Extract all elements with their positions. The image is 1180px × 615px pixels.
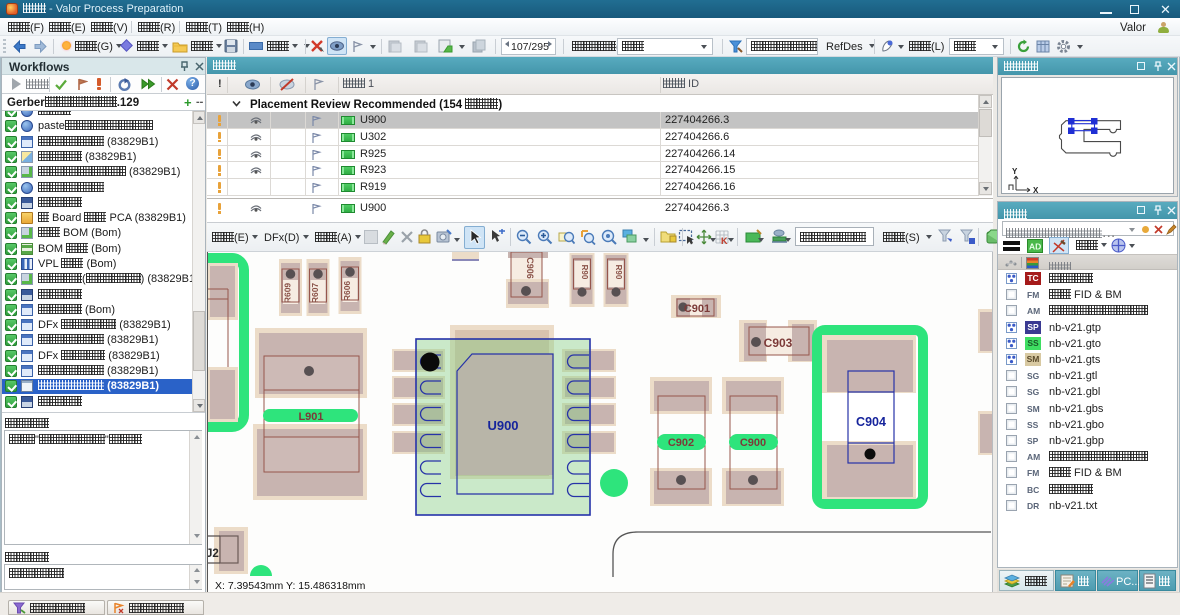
svg-text:C904: C904: [856, 415, 886, 429]
svg-text:L901: L901: [298, 411, 323, 423]
svg-text:AD: AD: [1029, 242, 1041, 252]
svg-text:C902: C902: [668, 437, 694, 449]
svg-text:K: K: [721, 236, 728, 245]
svg-text:R606: R606: [342, 281, 352, 302]
svg-text:Y: Y: [1012, 167, 1018, 176]
svg-text:C903: C903: [764, 336, 793, 350]
svg-text:C906: C906: [525, 257, 535, 279]
svg-text:R90: R90: [614, 265, 623, 280]
svg-text:X: 7.39543mm Y: 15.486318mm: X: 7.39543mm Y: 15.486318mm: [215, 580, 366, 592]
svg-text:C900: C900: [740, 437, 766, 449]
svg-text:R607: R607: [310, 283, 320, 304]
svg-text:X: X: [1033, 186, 1039, 193]
svg-text:R609: R609: [283, 283, 293, 304]
svg-text:U900: U900: [487, 418, 518, 433]
svg-text:C901: C901: [684, 303, 710, 315]
svg-text:J2: J2: [207, 548, 219, 560]
svg-text:R90: R90: [580, 265, 589, 280]
